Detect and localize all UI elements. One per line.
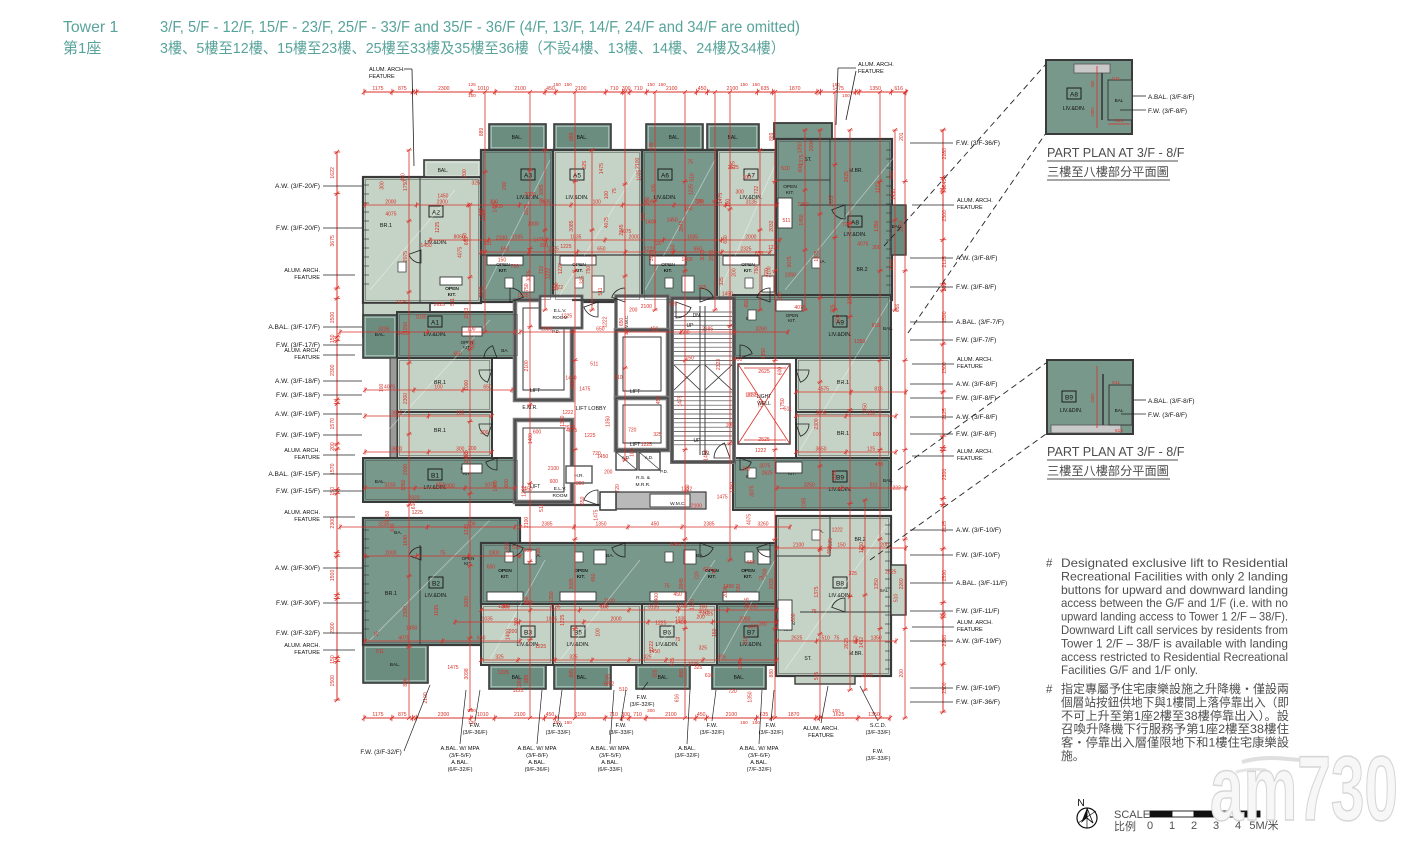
svg-text:F.W. (3/F-8/F): F.W. (3/F-8/F) <box>956 431 996 438</box>
svg-text:2100: 2100 <box>727 86 739 92</box>
svg-text:A1: A1 <box>431 320 439 327</box>
svg-text:2075: 2075 <box>524 204 530 215</box>
svg-text:2100: 2100 <box>496 236 507 242</box>
svg-text:upward landing access to Tower: upward landing access to Tower 1 2/F – 3… <box>1061 611 1288 624</box>
svg-text:Tower 1 2/F – 38/F is availabl: Tower 1 2/F – 38/F is available with lan… <box>1061 637 1288 650</box>
svg-text:2385: 2385 <box>703 521 714 527</box>
svg-text:325: 325 <box>652 184 658 193</box>
svg-text:150: 150 <box>684 206 693 212</box>
svg-text:1375: 1375 <box>814 586 820 597</box>
svg-text:2625: 2625 <box>758 369 770 375</box>
svg-text:OPEN: OPEN <box>574 568 588 574</box>
svg-text:1225: 1225 <box>641 442 652 448</box>
svg-text:650: 650 <box>580 496 586 505</box>
svg-text:(3/F-32/F): (3/F-32/F) <box>700 730 725 736</box>
svg-text:F.W. (3/F-32/F): F.W. (3/F-32/F) <box>360 749 401 756</box>
svg-text:1450: 1450 <box>437 193 448 199</box>
svg-text:1450: 1450 <box>891 189 897 200</box>
svg-text:125: 125 <box>867 446 876 452</box>
svg-text:880: 880 <box>769 669 775 678</box>
svg-text:(3/F-33/F): (3/F-33/F) <box>609 730 634 736</box>
svg-text:(6/F-32/F): (6/F-32/F) <box>448 767 473 773</box>
svg-text:W.M.C.: W.M.C. <box>670 501 686 507</box>
svg-text:650: 650 <box>619 318 625 327</box>
svg-text:2100: 2100 <box>666 86 678 92</box>
svg-text:1450: 1450 <box>799 214 805 225</box>
svg-text:2300: 2300 <box>1090 393 1095 403</box>
svg-text:(3/F-5/F): (3/F-5/F) <box>599 753 621 759</box>
svg-text:BA.: BA. <box>501 348 508 353</box>
svg-text:722: 722 <box>754 186 760 195</box>
svg-text:BAL.: BAL. <box>512 135 523 141</box>
svg-text:F.W.: F.W. <box>637 695 648 701</box>
svg-text:450: 450 <box>673 592 682 598</box>
svg-text:616: 616 <box>1115 118 1123 124</box>
svg-text:1222: 1222 <box>562 410 573 416</box>
svg-text:1225: 1225 <box>497 670 508 676</box>
svg-text:511: 511 <box>376 649 384 655</box>
svg-text:2032: 2032 <box>769 220 775 231</box>
svg-text:4075: 4075 <box>747 514 753 525</box>
svg-text:BR.1: BR.1 <box>434 428 446 434</box>
svg-text:200: 200 <box>502 182 508 191</box>
svg-text:150: 150 <box>686 355 695 361</box>
svg-text:2300: 2300 <box>330 517 336 529</box>
svg-text:2385: 2385 <box>541 521 552 527</box>
svg-text:2125: 2125 <box>942 408 948 420</box>
svg-text:ST.: ST. <box>804 157 811 163</box>
svg-text:720: 720 <box>628 428 637 434</box>
svg-text:3075: 3075 <box>750 486 756 497</box>
svg-text:650: 650 <box>525 600 534 606</box>
svg-text:3/F, 5/F - 12/F, 15/F - 23/F,: 3/F, 5/F - 12/F, 15/F - 23/F, 25/F - 33/… <box>160 19 800 36</box>
svg-text:100: 100 <box>630 448 636 457</box>
svg-text:1035: 1035 <box>687 234 698 240</box>
svg-text:A.W. (3/F-20/F): A.W. (3/F-20/F) <box>275 183 320 190</box>
svg-text:1350: 1350 <box>595 521 606 527</box>
svg-text:1400: 1400 <box>681 257 692 263</box>
svg-text:ALUM. ARCH.: ALUM. ARCH. <box>369 67 405 73</box>
svg-text:A.BAL.: A.BAL. <box>528 760 546 766</box>
svg-text:325: 325 <box>699 645 708 651</box>
svg-text:1035: 1035 <box>676 604 687 610</box>
svg-text:UP: UP <box>687 323 695 329</box>
svg-text:650: 650 <box>854 635 860 644</box>
svg-text:2323: 2323 <box>716 359 722 370</box>
svg-text:2100: 2100 <box>524 517 530 528</box>
svg-text:2000: 2000 <box>525 192 536 198</box>
svg-text:4075: 4075 <box>566 428 577 434</box>
svg-text:BAL.: BAL. <box>390 662 400 668</box>
svg-text:A.BAL. W/ MPA: A.BAL. W/ MPA <box>739 746 778 752</box>
svg-text:LIV.&DIN.: LIV.&DIN. <box>653 195 676 201</box>
svg-text:2845: 2845 <box>679 220 685 231</box>
svg-text:F.W.: F.W. <box>616 723 627 729</box>
svg-text:A.BAL. (3/F-17/F): A.BAL. (3/F-17/F) <box>268 324 320 331</box>
svg-text:ALUM. ARCH.: ALUM. ARCH. <box>803 726 839 732</box>
svg-text:Facilities G/F and 1/F only.: Facilities G/F and 1/F only. <box>1061 664 1198 677</box>
svg-text:B9: B9 <box>1065 395 1073 402</box>
svg-text:1222: 1222 <box>890 486 901 492</box>
svg-text:450: 450 <box>591 573 597 582</box>
svg-text:3260: 3260 <box>757 521 768 527</box>
svg-text:1350: 1350 <box>549 591 555 602</box>
svg-text:510: 510 <box>689 173 695 182</box>
svg-text:A.BAL.: A.BAL. <box>601 760 619 766</box>
svg-text:75: 75 <box>758 576 764 582</box>
svg-text:2100: 2100 <box>691 503 702 509</box>
svg-text:Recreational Facilities with o: Recreational Facilities with only 2 land… <box>1061 570 1288 583</box>
svg-text:750: 750 <box>754 266 760 275</box>
svg-text:FEATURE: FEATURE <box>294 275 320 281</box>
svg-text:ALUM. ARCH.: ALUM. ARCH. <box>284 643 320 649</box>
svg-text:1225: 1225 <box>655 620 666 626</box>
svg-text:F.W. (3/F-11/F): F.W. (3/F-11/F) <box>956 608 999 615</box>
svg-text:510: 510 <box>781 166 790 172</box>
svg-text:FEATURE: FEATURE <box>957 627 983 633</box>
svg-text:1350: 1350 <box>498 604 509 610</box>
svg-text:F.W.: F.W. <box>766 723 777 729</box>
svg-text:600: 600 <box>533 429 542 435</box>
svg-text:1035: 1035 <box>415 314 426 320</box>
svg-text:A.BAL. W/ MPA: A.BAL. W/ MPA <box>517 746 556 752</box>
svg-text:325: 325 <box>719 277 725 286</box>
svg-text:1010: 1010 <box>477 86 489 92</box>
svg-text:F.W. (3/F-20/F): F.W. (3/F-20/F) <box>276 225 320 232</box>
svg-text:511: 511 <box>782 218 790 224</box>
svg-text:325: 325 <box>643 654 652 660</box>
svg-text:1350: 1350 <box>761 348 767 359</box>
svg-text:1035: 1035 <box>517 293 528 299</box>
svg-text:1225: 1225 <box>584 433 595 439</box>
svg-text:1222: 1222 <box>681 486 692 492</box>
svg-text:2323: 2323 <box>464 307 470 318</box>
svg-text:F.W.: F.W. <box>707 723 718 729</box>
svg-text:2100: 2100 <box>726 712 738 718</box>
svg-text:2260: 2260 <box>899 578 905 589</box>
svg-text:A.BAL.: A.BAL. <box>451 760 469 766</box>
svg-text:325: 325 <box>472 181 481 187</box>
svg-text:3075: 3075 <box>747 392 758 398</box>
svg-text:720: 720 <box>695 571 701 580</box>
svg-text:BAL.: BAL. <box>734 675 745 681</box>
svg-text:720: 720 <box>758 399 764 408</box>
svg-text:150: 150 <box>554 282 560 291</box>
svg-text:1400: 1400 <box>675 620 686 626</box>
svg-text:2625: 2625 <box>791 635 802 641</box>
svg-text:2300: 2300 <box>330 622 336 634</box>
svg-text:616: 616 <box>1115 428 1123 434</box>
svg-text:1225: 1225 <box>561 313 572 319</box>
svg-text:個層站按鈕供地下與1樓間上落停靠出入（即: 個層站按鈕供地下與1樓間上落停靠出入（即 <box>1061 695 1289 709</box>
svg-text:#: # <box>1046 558 1053 570</box>
svg-text:2100: 2100 <box>575 86 587 92</box>
svg-text:2260: 2260 <box>942 635 948 647</box>
svg-text:(3/F-5/F): (3/F-5/F) <box>449 753 471 759</box>
svg-text:2000: 2000 <box>629 234 640 240</box>
svg-text:300: 300 <box>480 430 489 436</box>
svg-text:889: 889 <box>679 669 685 678</box>
svg-text:2625: 2625 <box>728 165 739 171</box>
svg-text:F.W. (3/F-30/F): F.W. (3/F-30/F) <box>276 600 320 607</box>
svg-text:3075: 3075 <box>527 270 533 281</box>
svg-text:(3/F-32/F): (3/F-32/F) <box>630 702 655 708</box>
svg-text:450: 450 <box>546 86 555 92</box>
svg-text:325: 325 <box>717 654 726 660</box>
svg-text:1475: 1475 <box>447 665 458 671</box>
svg-text:A.W. (3/F-8/F): A.W. (3/F-8/F) <box>956 381 997 388</box>
svg-text:KIT.: KIT. <box>501 574 509 580</box>
svg-text:100: 100 <box>842 93 850 98</box>
svg-text:200: 200 <box>330 442 336 451</box>
svg-text:2325: 2325 <box>740 246 751 252</box>
svg-text:450: 450 <box>697 712 706 718</box>
svg-text:710: 710 <box>634 86 643 92</box>
svg-text:ST.: ST. <box>804 656 811 662</box>
svg-text:650: 650 <box>501 246 510 252</box>
svg-text:600: 600 <box>777 292 783 301</box>
svg-text:450: 450 <box>875 462 884 468</box>
svg-text:F.W. (3/F-19/F): F.W. (3/F-19/F) <box>956 685 1000 692</box>
svg-text:325: 325 <box>849 571 858 577</box>
svg-text:LIFT: LIFT <box>630 389 640 395</box>
svg-text:4075: 4075 <box>604 217 610 228</box>
svg-text:S.C.D.: S.C.D. <box>870 723 887 729</box>
svg-text:1035: 1035 <box>482 616 493 622</box>
svg-text:FEATURE: FEATURE <box>808 733 834 739</box>
svg-text:880: 880 <box>403 678 409 687</box>
svg-text:150: 150 <box>498 258 507 264</box>
svg-text:1222: 1222 <box>832 528 843 534</box>
svg-text:450: 450 <box>546 712 555 718</box>
svg-text:BAL.: BAL. <box>577 135 588 141</box>
svg-text:2323: 2323 <box>408 495 419 501</box>
svg-text:P.D.: P.D. <box>552 329 560 334</box>
svg-text:1035: 1035 <box>688 662 699 668</box>
svg-text:3650: 3650 <box>815 446 826 452</box>
svg-text:A3: A3 <box>524 173 532 180</box>
svg-text:BAL.: BAL. <box>669 135 680 141</box>
svg-text:F.W. (3/F-32/F): F.W. (3/F-32/F) <box>276 630 320 637</box>
svg-text:200: 200 <box>629 307 638 313</box>
svg-text:150: 150 <box>740 720 748 725</box>
svg-text:(3/F-6/F): (3/F-6/F) <box>748 753 770 759</box>
svg-text:650: 650 <box>483 384 492 390</box>
svg-text:A.D.: A.D. <box>645 455 654 460</box>
svg-text:3885: 3885 <box>539 184 545 195</box>
svg-text:1400: 1400 <box>703 449 709 460</box>
svg-text:150: 150 <box>752 82 760 87</box>
svg-text:ALUM. ARCH.: ALUM. ARCH. <box>957 620 993 626</box>
svg-text:2100: 2100 <box>793 542 804 548</box>
svg-text:1035: 1035 <box>434 605 440 616</box>
svg-text:2625: 2625 <box>434 302 445 308</box>
svg-text:1640: 1640 <box>403 535 409 546</box>
svg-text:1870: 1870 <box>789 86 801 92</box>
svg-text:A.BAL.: A.BAL. <box>750 760 768 766</box>
svg-text:A.W. (3/F-10/F): A.W. (3/F-10/F) <box>956 527 1001 534</box>
svg-text:LIV.&DIN.: LIV.&DIN. <box>1063 106 1086 112</box>
svg-text:650: 650 <box>462 233 468 242</box>
svg-text:300: 300 <box>514 617 520 626</box>
svg-text:1475: 1475 <box>593 509 599 520</box>
svg-text:KIT.: KIT. <box>499 268 507 274</box>
svg-text:2300: 2300 <box>942 210 948 222</box>
svg-text:511: 511 <box>870 482 878 488</box>
svg-text:885: 885 <box>569 669 575 678</box>
svg-text:A.BAL. (3/F-11/F): A.BAL. (3/F-11/F) <box>956 580 1007 587</box>
svg-text:Designated exclusive lift t: Designated exclusive lift to Residential <box>1061 557 1288 570</box>
svg-text:1450: 1450 <box>862 403 868 414</box>
svg-text:2100: 2100 <box>861 673 872 679</box>
svg-text:300: 300 <box>735 189 744 195</box>
svg-text:2000: 2000 <box>528 221 539 227</box>
svg-text:3135: 3135 <box>549 604 560 610</box>
svg-text:510: 510 <box>619 687 628 693</box>
svg-text:LIV.&DIN.: LIV.&DIN. <box>843 232 866 238</box>
svg-text:300: 300 <box>576 481 585 487</box>
svg-text:ALUM. ARCH.: ALUM. ARCH. <box>858 62 894 68</box>
svg-text:FEATURE: FEATURE <box>294 650 320 656</box>
svg-text:200: 200 <box>462 169 468 178</box>
svg-text:4075: 4075 <box>398 635 409 641</box>
svg-text:100: 100 <box>641 213 647 222</box>
svg-text:ALUM. ARCH.: ALUM. ARCH. <box>284 448 320 454</box>
svg-text:511: 511 <box>539 504 545 512</box>
svg-text:KIT.: KIT. <box>664 268 672 274</box>
svg-text:889: 889 <box>649 142 655 151</box>
svg-text:1350: 1350 <box>730 482 736 493</box>
svg-text:100: 100 <box>604 191 610 200</box>
svg-text:BAL.: BAL. <box>883 478 893 483</box>
svg-text:1000: 1000 <box>464 380 470 391</box>
svg-text:H.R.: H.R. <box>574 473 584 479</box>
svg-text:75: 75 <box>712 568 718 574</box>
svg-text:889: 889 <box>769 132 775 141</box>
svg-text:1225: 1225 <box>435 222 441 233</box>
svg-text:2100: 2100 <box>635 157 641 168</box>
svg-text:2100: 2100 <box>641 304 652 310</box>
svg-text:2100: 2100 <box>548 466 559 472</box>
svg-text:150: 150 <box>752 720 760 725</box>
svg-text:2300: 2300 <box>942 469 948 481</box>
svg-text:150: 150 <box>832 82 840 87</box>
svg-text:325: 325 <box>653 669 659 678</box>
svg-text:325: 325 <box>830 304 836 313</box>
svg-text:325: 325 <box>847 296 853 305</box>
svg-text:600: 600 <box>798 164 804 173</box>
svg-text:A.BAL. W/ MPA: A.BAL. W/ MPA <box>440 746 479 752</box>
svg-text:1450: 1450 <box>667 217 678 223</box>
svg-text:325: 325 <box>670 658 676 667</box>
svg-text:3675: 3675 <box>330 235 336 247</box>
svg-text:889: 889 <box>479 128 485 137</box>
svg-text:FEATURE: FEATURE <box>294 355 320 361</box>
svg-text:(3/F-32/F): (3/F-32/F) <box>675 753 700 759</box>
svg-text:650: 650 <box>597 246 606 252</box>
svg-text:100: 100 <box>726 423 735 429</box>
svg-text:75: 75 <box>440 550 446 556</box>
svg-text:616: 616 <box>390 523 396 532</box>
svg-text:3135: 3135 <box>648 604 659 610</box>
svg-text:1475: 1475 <box>677 395 683 406</box>
svg-text:A.BAL.: A.BAL. <box>678 746 696 752</box>
svg-text:B1: B1 <box>431 473 439 480</box>
svg-text:2: 2 <box>1191 820 1197 832</box>
svg-text:F.W.: F.W. <box>470 723 481 729</box>
svg-text:511: 511 <box>450 298 456 306</box>
svg-text:2300: 2300 <box>1090 107 1095 117</box>
svg-text:指定專屬予住宅康樂設施之升降機‧僅設兩: 指定專屬予住宅康樂設施之升降機‧僅設兩 <box>1061 682 1289 696</box>
svg-text:1570: 1570 <box>330 463 336 475</box>
svg-text:A.W. (3/F-8/F): A.W. (3/F-8/F) <box>956 414 997 421</box>
svg-text:2590: 2590 <box>942 311 948 323</box>
svg-text:1622: 1622 <box>330 167 336 179</box>
svg-text:2000: 2000 <box>385 199 396 205</box>
svg-text:1222: 1222 <box>768 245 779 251</box>
svg-text:300: 300 <box>872 245 881 251</box>
svg-text:A.W. (3/F-18/F): A.W. (3/F-18/F) <box>275 378 320 385</box>
svg-text:ALUM. ARCH.: ALUM. ARCH. <box>957 449 993 455</box>
svg-text:1350: 1350 <box>854 339 865 345</box>
svg-text:OPEN: OPEN <box>783 184 797 190</box>
svg-text:4075: 4075 <box>385 211 396 217</box>
svg-text:650: 650 <box>477 635 486 641</box>
svg-text:(3/F-32/F): (3/F-32/F) <box>759 730 784 736</box>
svg-text:1222: 1222 <box>602 316 608 327</box>
svg-text:2300: 2300 <box>814 418 820 429</box>
svg-text:2032: 2032 <box>769 578 775 589</box>
svg-text:DN.: DN. <box>693 313 702 319</box>
svg-text:1350: 1350 <box>785 273 796 279</box>
svg-text:三樓至八樓部分平面圖: 三樓至八樓部分平面圖 <box>1047 164 1169 179</box>
svg-text:1375: 1375 <box>799 154 805 165</box>
svg-text:1225: 1225 <box>560 614 566 625</box>
svg-text:2000: 2000 <box>739 616 750 622</box>
svg-text:3085: 3085 <box>569 578 575 589</box>
svg-text:1350: 1350 <box>874 220 880 231</box>
svg-text:720: 720 <box>728 689 737 695</box>
svg-text:3098: 3098 <box>464 668 470 679</box>
svg-text:1350: 1350 <box>505 542 511 553</box>
svg-text:1350: 1350 <box>401 479 407 490</box>
svg-text:FEATURE: FEATURE <box>294 517 320 523</box>
svg-text:889: 889 <box>569 132 575 141</box>
svg-text:2100: 2100 <box>514 86 526 92</box>
svg-text:2000: 2000 <box>745 234 756 240</box>
svg-text:3075: 3075 <box>787 256 793 267</box>
svg-text:450: 450 <box>827 546 833 555</box>
svg-text:F.W. (3/F-19/F): F.W. (3/F-19/F) <box>276 432 320 439</box>
svg-text:300: 300 <box>1090 80 1095 88</box>
svg-text:(3/F-33/F): (3/F-33/F) <box>866 756 891 762</box>
svg-text:200: 200 <box>696 615 705 621</box>
svg-text:200: 200 <box>540 243 549 249</box>
svg-text:75: 75 <box>375 631 381 637</box>
svg-text:300: 300 <box>622 86 631 92</box>
svg-text:150: 150 <box>553 82 561 87</box>
svg-text:600: 600 <box>504 479 510 488</box>
svg-text:2280: 2280 <box>942 148 948 160</box>
svg-text:150: 150 <box>671 244 677 253</box>
svg-text:325: 325 <box>495 654 504 660</box>
svg-text:2000: 2000 <box>809 140 815 151</box>
svg-text:Tower 1: Tower 1 <box>63 19 119 36</box>
svg-text:ALUM. ARCH.: ALUM. ARCH. <box>284 348 320 354</box>
svg-text:FEATURE: FEATURE <box>294 455 320 461</box>
svg-text:ALUM. ARCH.: ALUM. ARCH. <box>957 198 993 204</box>
svg-text:600: 600 <box>681 330 690 336</box>
